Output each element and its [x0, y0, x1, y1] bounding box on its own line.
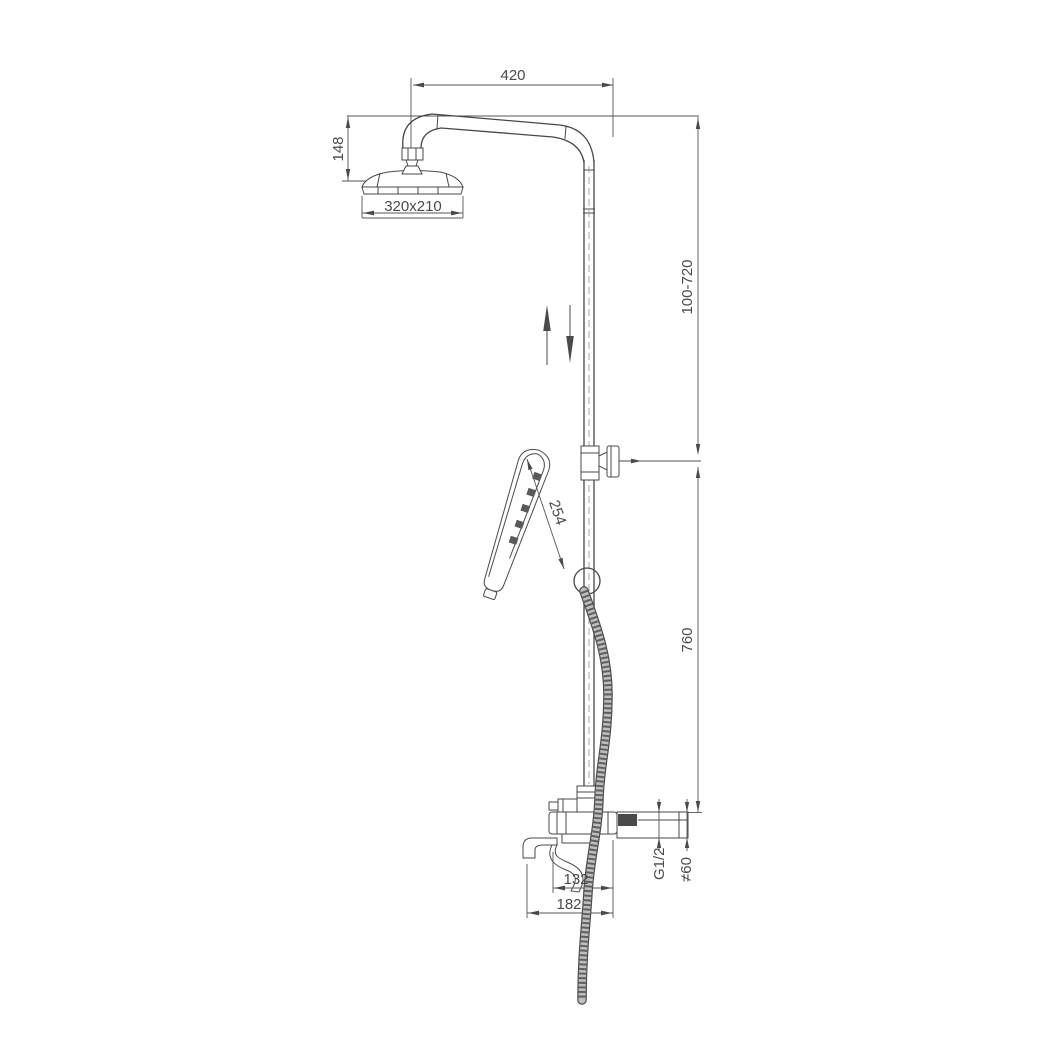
slider-bracket: [581, 446, 641, 480]
dim-label-arm-reach: 420: [500, 67, 525, 84]
shower-diagram: 420 148 320x210 100-720 254 760 G1/2 ≠60…: [0, 0, 1058, 1058]
dim-label-riser-adjust: 100-720: [679, 259, 696, 314]
ball-joint-connector: [402, 148, 423, 174]
slide-up-arrow: [543, 305, 551, 365]
dim-label-spout-reach-inner: 132: [563, 871, 588, 888]
dimension-riser-adjust-100-720: [696, 117, 700, 455]
technical-drawing-canvas: 420 148 320x210 100-720 254 760 G1/2 ≠60…: [0, 0, 1058, 1058]
shower-arm: [403, 114, 594, 162]
dim-label-riser-height: 760: [679, 627, 696, 652]
slide-down-arrow: [566, 305, 574, 363]
hand-shower: [474, 445, 554, 603]
dim-label-inlet-thread: G1/2: [651, 847, 668, 880]
dim-label-head-size: 320x210: [384, 198, 442, 215]
dim-label-arm-drop: 148: [330, 136, 347, 161]
knob-handle: [607, 446, 619, 477]
wall-connector: [617, 812, 688, 838]
dimension-arm-reach-420: [411, 78, 613, 187]
dim-label-spout-reach-outer: 182: [556, 896, 581, 913]
dim-label-escutcheon-diameter: ≠60: [678, 857, 695, 882]
